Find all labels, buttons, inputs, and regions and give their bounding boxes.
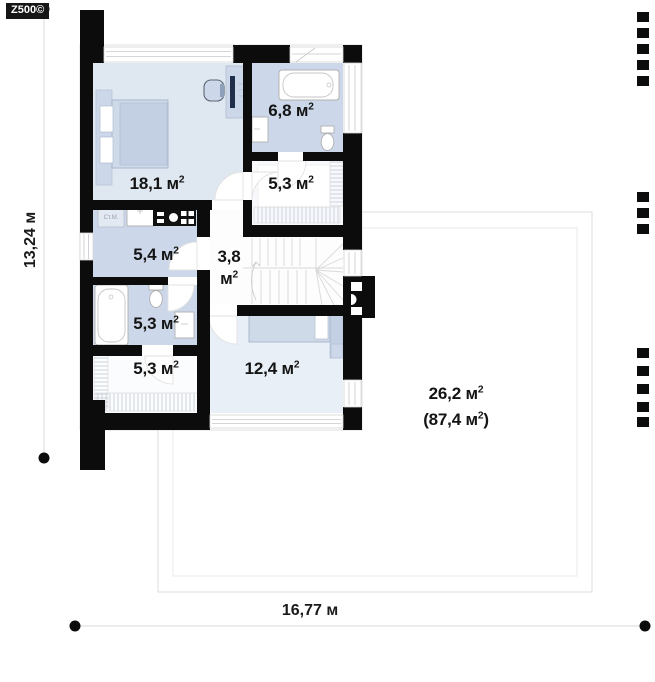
- wall-pillar-topleft: [80, 10, 104, 63]
- pillow-icon: [315, 315, 328, 339]
- wall-int: [197, 210, 210, 237]
- window-balcony-door: [290, 47, 343, 62]
- wall-int: [247, 152, 278, 161]
- nightstand-icon: [331, 344, 343, 358]
- dimension-dot: [39, 453, 50, 464]
- washing-machine-label: Ст.М.: [104, 215, 119, 221]
- wall-bottom: [100, 413, 210, 430]
- wall-int: [173, 345, 207, 356]
- wall-int: [237, 305, 343, 316]
- room-area-label-wardrobe: 5,3 м2: [133, 359, 178, 379]
- wall-int: [197, 270, 210, 415]
- dimension-dot: [640, 621, 651, 632]
- window-right-upper: [344, 63, 361, 133]
- wall-corner-bottomright: [343, 407, 362, 430]
- pillow-icon: [100, 137, 113, 163]
- room-area-label-bedroom: 18,1 м2: [130, 174, 185, 194]
- window-left: [80, 233, 93, 260]
- attic-total-area-label: (87,4 м2): [423, 410, 489, 430]
- wall-int: [93, 345, 142, 356]
- room-area-label-hall-unit: м2: [220, 269, 238, 289]
- z500-logo: Z500©: [6, 3, 49, 19]
- room-area-label-laundry: 5,4 м2: [133, 245, 178, 265]
- pillow-icon: [100, 106, 113, 132]
- room-area-label-bathroom-top: 6,8 м2: [268, 101, 313, 121]
- wall-int: [303, 152, 343, 161]
- floor-plan-canvas: [0, 0, 655, 682]
- attic-usable-area-label: 26,2 м2: [429, 384, 484, 404]
- window-bottom: [210, 415, 343, 428]
- window-top: [104, 47, 233, 62]
- monitor-icon: [230, 76, 235, 108]
- wall-int: [93, 200, 212, 210]
- toilet-icon: [321, 126, 334, 133]
- wall-right: [343, 133, 362, 250]
- wall-int: [243, 225, 343, 237]
- wall-top: [233, 45, 290, 63]
- window-right-mid: [344, 250, 361, 276]
- width-dimension-label: 16,77 м: [282, 602, 338, 620]
- wall-pillar-bottomleft: [80, 400, 105, 470]
- window-right-lower: [344, 380, 361, 407]
- wall-corner-topright: [343, 45, 362, 63]
- section-line-marks: [637, 12, 649, 427]
- wall-right-lower: [343, 318, 362, 380]
- sink-icon: [252, 117, 268, 142]
- room-area-label-hall-value: 3,8: [217, 247, 240, 267]
- height-dimension-label: 13,24 м: [22, 212, 40, 268]
- dimension-dot: [70, 621, 81, 632]
- room-area-label-bathroom-left: 5,3 м2: [133, 314, 178, 334]
- floor-plan-page: Z500© 13,24 м 16,77 м 18,1 м2 6,8 м2 5,3…: [0, 0, 655, 682]
- wall-int: [93, 277, 168, 285]
- wall-left: [80, 63, 93, 400]
- room-area-label-closet-top: 5,3 м2: [268, 174, 313, 194]
- room-area-label-bedroom-small: 12,4 м2: [245, 359, 300, 379]
